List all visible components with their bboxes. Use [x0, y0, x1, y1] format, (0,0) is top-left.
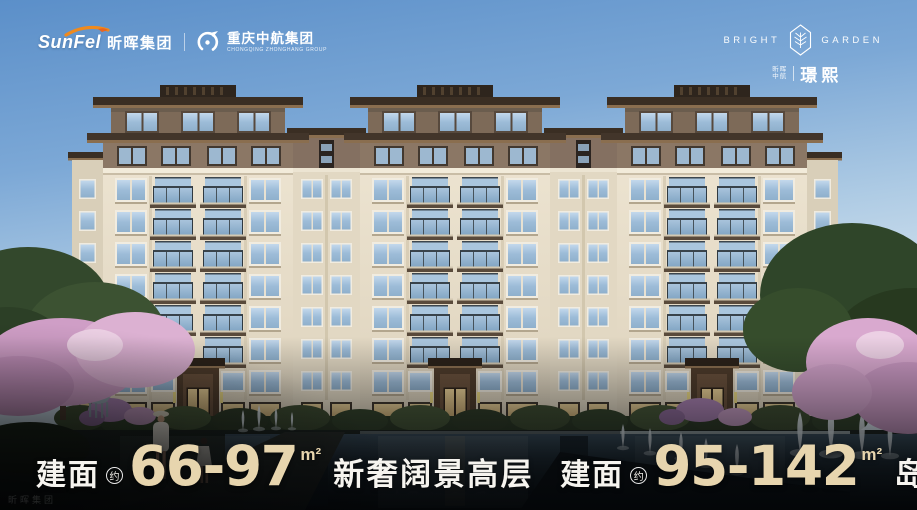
sunfel-chinese-name: 昕晖集团 — [107, 32, 173, 53]
sunfel-swoosh-icon — [64, 25, 110, 37]
garden-emblem-icon — [789, 24, 812, 56]
partner-english-name: CHONGQING ZHONGHANG GROUP — [227, 48, 327, 53]
area-range: 66-97 — [129, 444, 297, 488]
partner-text: 重庆中航集团 CHONGQING ZHONGHANG GROUP — [227, 32, 327, 53]
bright-garden-row: BRIGHT GARDEN — [723, 24, 883, 56]
brand-right-lockup: BRIGHT GARDEN 昕晖 中航 璟熙 — [723, 24, 883, 86]
area-unit: m² — [300, 445, 321, 465]
approx-circle: 约 — [106, 467, 123, 484]
area-label: 建面 — [36, 450, 100, 494]
brand-left-lockup: SunFel 昕晖集团 重庆中航集团 CHONGQING ZHONGHANG G… — [38, 30, 327, 54]
partner-chinese-name: 重庆中航集团 — [227, 32, 327, 46]
partner-emblem-icon — [196, 30, 220, 54]
product-slogan: 新奢阔景高层 — [333, 449, 534, 494]
area-unit: m² — [861, 445, 882, 465]
watermark: 昕晖集团 — [8, 493, 56, 506]
area-segment-flats: 建面 约 95-142 m² 岛岸揽景洋房 — [560, 444, 917, 494]
bright-word: BRIGHT — [723, 35, 780, 46]
project-divider — [793, 66, 794, 81]
approx-circle: 约 — [630, 467, 647, 484]
area-segment-highrise: 建面 约 66-97 m² 新奢阔景高层 — [36, 444, 534, 494]
sunfel-logo: SunFel 昕晖集团 — [38, 32, 173, 53]
building — [68, 85, 842, 431]
product-slogan: 岛岸揽景洋房 — [894, 449, 917, 494]
area-label: 建面 — [560, 450, 624, 494]
project-name: 璟熙 — [800, 61, 842, 86]
slogan-bar: 建面 约 66-97 m² 新奢阔景高层 建面 约 95-142 m² 岛岸揽景… — [36, 444, 917, 494]
ad-poster: SunFel 昕晖集团 重庆中航集团 CHONGQING ZHONGHANG G… — [0, 0, 917, 510]
area-range: 95-142 — [653, 444, 858, 488]
owner-line2: 中航 — [772, 74, 787, 81]
brand-divider — [184, 33, 185, 51]
header: SunFel 昕晖集团 重庆中航集团 CHONGQING ZHONGHANG G… — [38, 30, 883, 86]
partner-logo: 重庆中航集团 CHONGQING ZHONGHANG GROUP — [196, 30, 327, 54]
garden-word: GARDEN — [821, 35, 883, 46]
owner-mini-lockup: 昕晖 中航 — [772, 67, 787, 81]
project-name-row: 昕晖 中航 璟熙 — [772, 61, 838, 86]
